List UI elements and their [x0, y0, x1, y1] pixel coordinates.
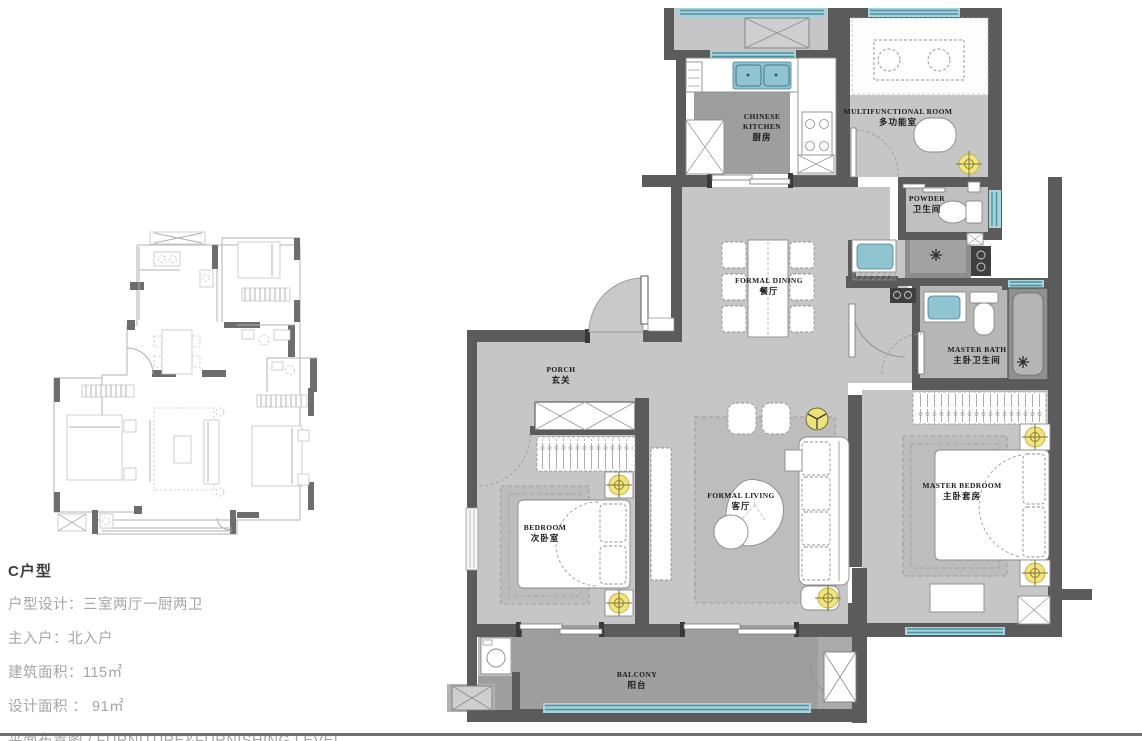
- powder-toilet: [938, 201, 968, 223]
- desk-chair: [928, 49, 950, 71]
- porch-wardrobe: [535, 402, 635, 430]
- dining-chair: [722, 274, 746, 300]
- bath-sink: [928, 296, 960, 319]
- dining-chair: [790, 306, 814, 332]
- pillow: [600, 546, 626, 584]
- pillow: [600, 504, 626, 542]
- sofa-cushion: [802, 442, 830, 475]
- ottoman: [728, 403, 756, 434]
- desk-chair: [878, 49, 900, 71]
- bedroom-balcony-slider: [520, 624, 562, 629]
- main-floorplan: [0, 0, 1142, 741]
- floorplan-sheet: C户型 户型设计：三室两厅一厨两卫 主入户：北入户 建筑面积：115㎡ 设计面积…: [0, 0, 1142, 741]
- dining-chair: [790, 242, 814, 268]
- hall-sink: [857, 244, 893, 269]
- washing-machine: [481, 638, 511, 674]
- side-table: [785, 450, 802, 471]
- kitchen-sink: [733, 62, 791, 89]
- entry-door-leaf: [641, 276, 648, 324]
- kitchen-cabinet: [686, 62, 702, 92]
- side-table: [914, 118, 956, 152]
- sofa-cushion: [802, 512, 830, 545]
- dining-chair: [790, 274, 814, 300]
- bedroom-bench: [930, 584, 984, 612]
- dining-chair: [722, 306, 746, 332]
- dining-chair: [722, 242, 746, 268]
- pillow: [1023, 507, 1045, 557]
- sofa-cushion: [802, 547, 830, 580]
- entry-door-swing: [589, 278, 643, 332]
- pillow: [1023, 454, 1045, 504]
- tv-cabinet: [651, 448, 671, 580]
- bottom-divider: [0, 733, 1142, 736]
- round-stool: [714, 515, 748, 549]
- bath-toilet: [974, 303, 994, 335]
- sofa-cushion: [802, 477, 830, 510]
- dining-furniture: [722, 240, 814, 337]
- ottoman: [762, 403, 790, 434]
- living-balcony-slider: [684, 624, 740, 629]
- kitchen-stove: [802, 112, 832, 162]
- laundry-unit: [971, 246, 991, 276]
- kitchen-sliding-door: [712, 175, 752, 180]
- fan-symbol: [806, 408, 828, 430]
